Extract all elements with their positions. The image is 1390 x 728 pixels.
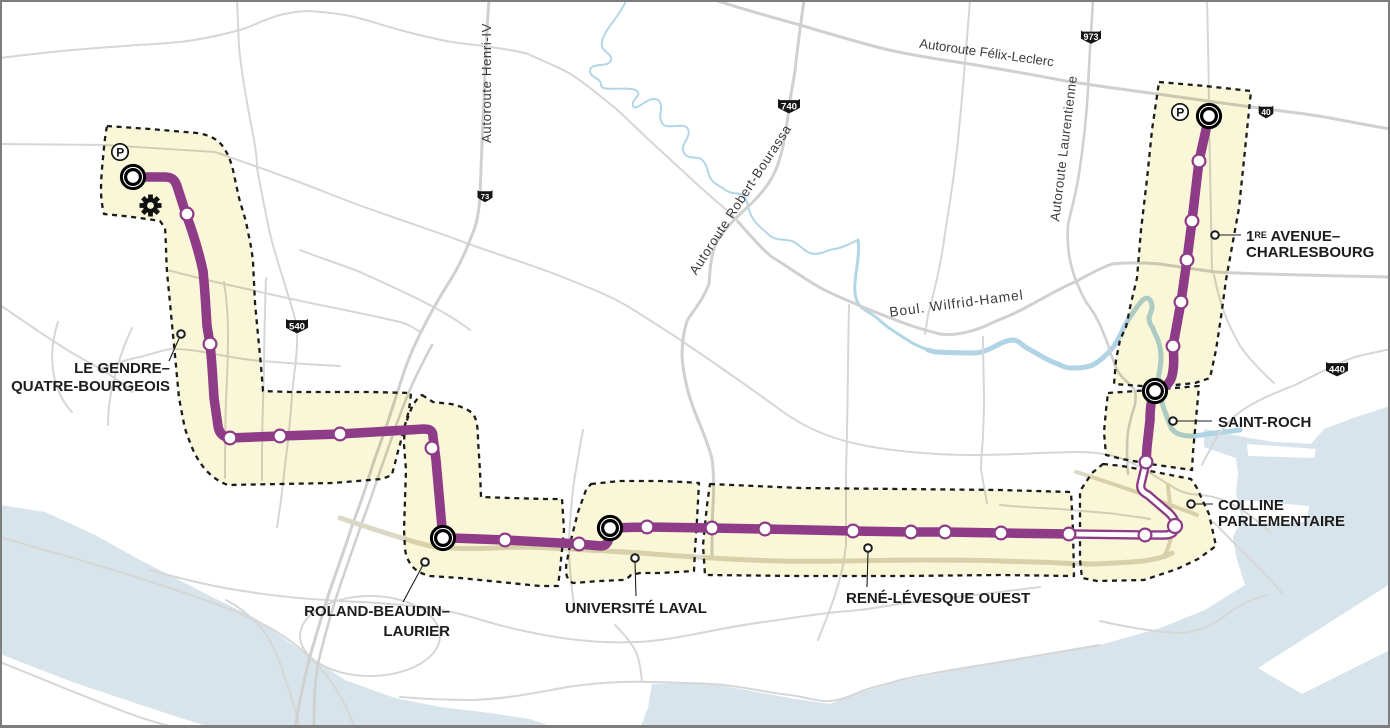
svg-text:740: 740 — [781, 101, 797, 112]
svg-text:COLLINE: COLLINE — [1218, 497, 1284, 514]
svg-text:Autoroute Henri-IV: Autoroute Henri-IV — [479, 23, 494, 143]
svg-text:LAURIER: LAURIER — [383, 623, 450, 640]
svg-text:Boul. Wilfrid-Hamel: Boul. Wilfrid-Hamel — [888, 287, 1024, 320]
svg-text:QUATRE-BOURGEOIS: QUATRE-BOURGEOIS — [11, 378, 170, 395]
svg-text:P: P — [116, 146, 124, 160]
svg-text:Autoroute Félix-Leclerc: Autoroute Félix-Leclerc — [918, 36, 1055, 70]
svg-text:440: 440 — [1329, 364, 1345, 375]
svg-text:CHARLESBOURG: CHARLESBOURG — [1246, 244, 1374, 261]
svg-text:973: 973 — [1083, 32, 1098, 42]
svg-text:1RE AVENUE–: 1RE AVENUE– — [1246, 228, 1340, 245]
svg-text:UNIVERSITÉ LAVAL: UNIVERSITÉ LAVAL — [565, 600, 707, 617]
svg-text:PARLEMENTAIRE: PARLEMENTAIRE — [1218, 513, 1345, 530]
svg-text:SAINT-ROCH: SAINT-ROCH — [1218, 414, 1311, 431]
svg-text:40: 40 — [1261, 107, 1271, 117]
svg-text:LE GENDRE–: LE GENDRE– — [74, 360, 170, 377]
svg-text:RENÉ-LÉVESQUE OUEST: RENÉ-LÉVESQUE OUEST — [846, 590, 1030, 607]
svg-text:Autoroute Robert-Bourassa: Autoroute Robert-Bourassa — [686, 122, 794, 277]
svg-text:73: 73 — [481, 192, 489, 201]
svg-text:ROLAND-BEAUDIN–: ROLAND-BEAUDIN– — [304, 603, 450, 620]
svg-text:540: 540 — [289, 321, 305, 332]
svg-text:P: P — [1176, 106, 1184, 120]
